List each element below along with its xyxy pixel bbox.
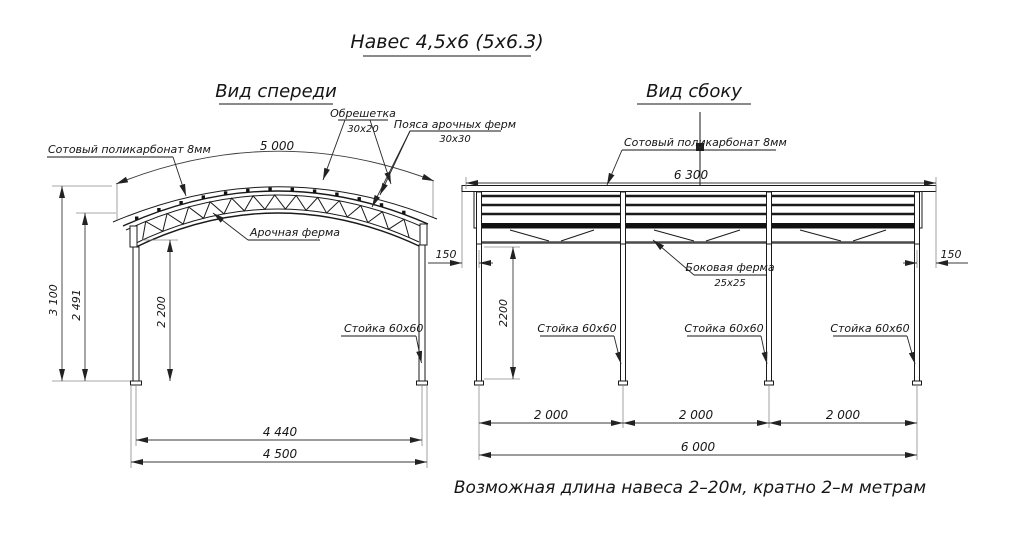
front-post-left (133, 247, 139, 381)
leader-line (653, 240, 694, 275)
front-view-title: Вид спереди (215, 81, 337, 102)
leader-line (173, 157, 186, 196)
purlin-dot (313, 189, 316, 192)
side-dim-roof-length: 6 300 (674, 168, 709, 182)
front-post-right (419, 245, 425, 381)
front-truss-chords-size: 30х30 (439, 134, 470, 145)
purlin-dot (402, 211, 405, 214)
side-view-labels: Сотовый поликарбонат 8мм Боковая ферма 2… (537, 136, 915, 364)
purlin-dot (358, 197, 361, 200)
purlin-dot (179, 201, 182, 204)
side-polycarbonate-label: Сотовый поликарбонат 8мм (624, 136, 787, 149)
side-truss-label: Боковая ферма (685, 261, 774, 274)
side-dim-overhang-left: 150 (436, 248, 457, 261)
side-vertical-member (767, 192, 772, 244)
front-view-drawing (113, 187, 437, 385)
purlin-dot (291, 188, 294, 191)
side-post-base (913, 381, 922, 385)
purlin-dot (157, 208, 160, 211)
side-dim-total-length: 6 000 (681, 440, 716, 454)
side-dim-bay-3: 2 000 (826, 408, 861, 422)
side-truss-diagonal (510, 230, 549, 241)
front-post-left-base (131, 381, 142, 385)
front-dim-arc-width: 5 000 (260, 139, 295, 153)
side-vertical-member (477, 192, 482, 244)
technical-drawing-page: Навес 4,5х6 (5х6.3) Вид спереди Вид сбок… (0, 0, 1024, 557)
front-polycarbonate-label: Сотовый поликарбонат 8мм (48, 143, 211, 156)
front-sheathing-label: Обрешетка (330, 107, 396, 120)
purlin-dot (380, 203, 383, 206)
side-view-drawing (462, 112, 936, 385)
front-truss-end-left (130, 226, 137, 247)
purlin-dot (135, 217, 138, 220)
side-polycarbonate-sheet (462, 186, 936, 192)
side-truss-diagonal (853, 230, 886, 241)
leader-line (907, 336, 915, 364)
front-dim-eave-height: 2 491 (70, 289, 83, 321)
front-dim-post-height: 2 200 (155, 296, 168, 328)
side-vertical-member (915, 192, 920, 244)
side-dim-overhang-right: 150 (941, 248, 962, 261)
leader-line (323, 120, 345, 180)
front-dim-outer-width: 4 500 (263, 447, 298, 461)
front-dim-inner-width: 4 440 (263, 425, 298, 439)
front-arch-truss-label: Арочная ферма (249, 226, 340, 239)
side-dim-post-height: 2200 (497, 299, 510, 327)
side-dim-bay-1: 2 000 (534, 408, 569, 422)
side-post-label-1: Стойка 60х60 (537, 322, 616, 335)
purlin-dot (335, 193, 338, 196)
side-dim-bay-2: 2 000 (679, 408, 714, 422)
side-truss-diagonal (800, 230, 841, 241)
side-truss-size: 25х25 (714, 278, 745, 289)
canopy-drawing: Навес 4,5х6 (5х6.3) Вид спереди Вид сбок… (0, 0, 1024, 557)
side-truss-diagonal (654, 230, 694, 241)
side-truss-diagonal (706, 230, 740, 241)
front-post-right-base (417, 381, 428, 385)
page-title: Навес 4,5х6 (5х6.3) (350, 31, 543, 53)
side-post-2 (621, 244, 626, 381)
side-post-label-2: Стойка 60х60 (684, 322, 763, 335)
purlin-dot (224, 191, 227, 194)
leader-line (614, 336, 621, 364)
length-note: Возможная длина навеса 2–20м, кратно 2–м… (454, 478, 926, 498)
side-post-label-3: Стойка 60х60 (830, 322, 909, 335)
side-view-title: Вид сбоку (646, 81, 742, 102)
side-post-base (619, 381, 628, 385)
front-truss-chords-label: Пояса арочных ферм (394, 118, 516, 131)
front-polycarbonate-arc (113, 187, 437, 222)
purlin-dot (202, 195, 205, 198)
side-vertical-member (621, 192, 626, 244)
side-post-base (475, 381, 484, 385)
side-truss-diagonal (561, 230, 594, 241)
front-dim-total-height: 3 100 (47, 284, 60, 316)
front-post-label: Стойка 60х60 (344, 322, 423, 335)
purlin-dot (246, 189, 249, 192)
leader-line (607, 150, 622, 185)
front-truss-end-right (420, 224, 427, 245)
purlin-dot (268, 188, 271, 191)
side-post-base (765, 381, 774, 385)
